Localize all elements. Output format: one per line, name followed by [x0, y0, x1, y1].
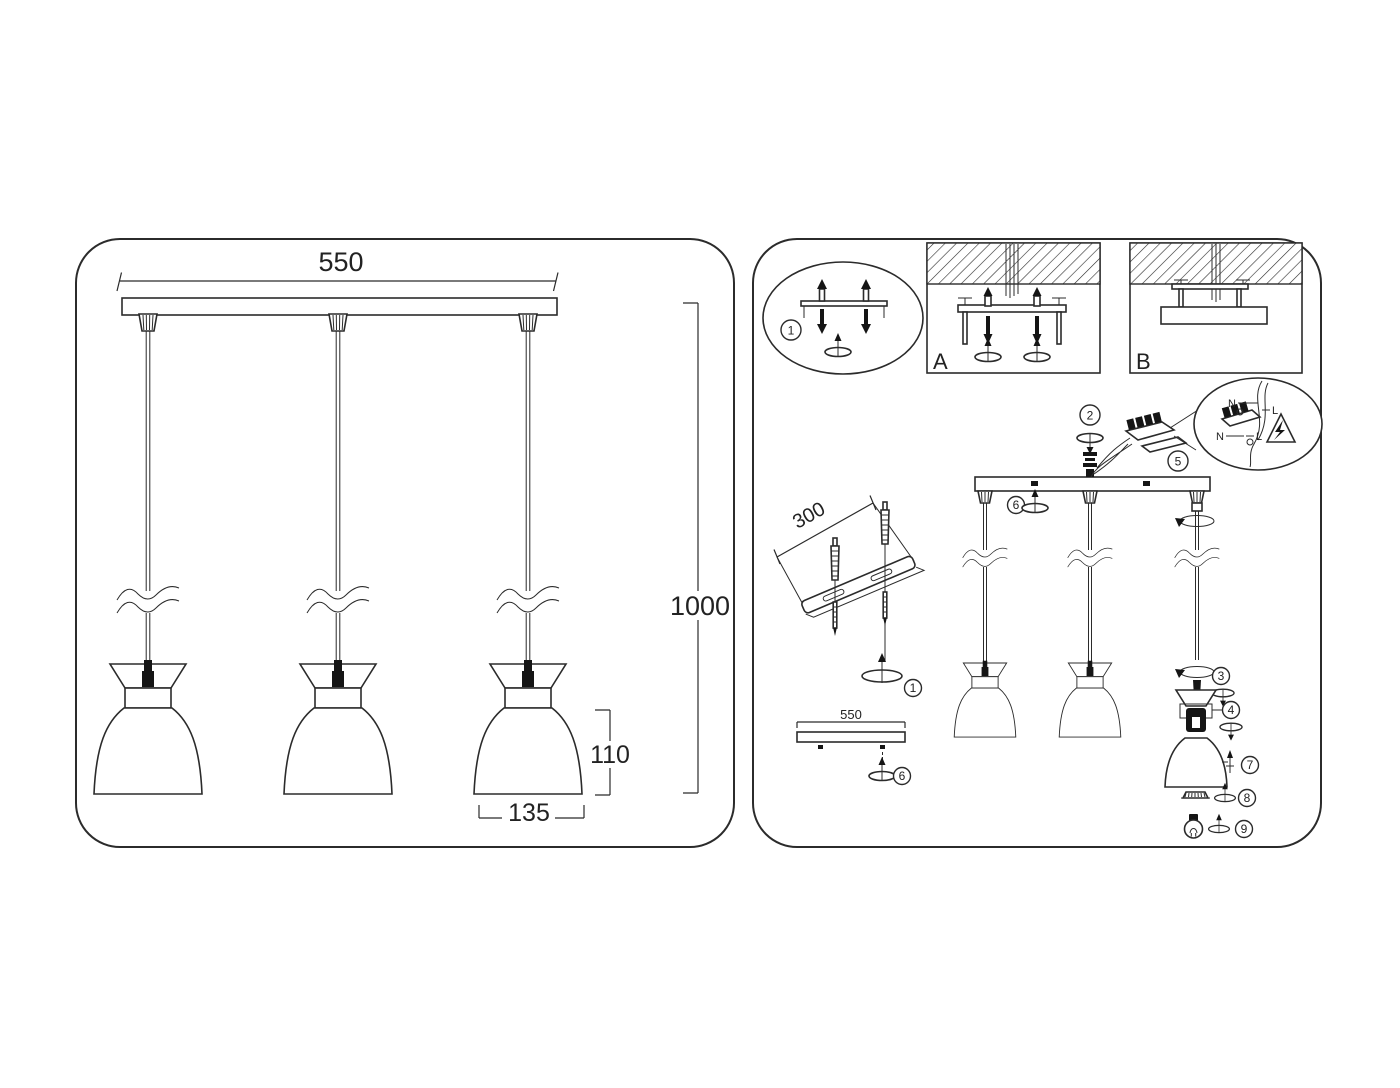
- dim-bar-label: 550: [840, 707, 862, 722]
- wiring-detail: N L N L: [1194, 378, 1322, 470]
- cord-grip: [1083, 491, 1097, 503]
- cord-grip: [978, 491, 992, 503]
- callout-8: 8: [1239, 790, 1256, 807]
- cord-grip: [1190, 491, 1204, 503]
- svg-text:4: 4: [1228, 703, 1235, 717]
- svg-text:6: 6: [899, 769, 906, 783]
- callout-1b: 1: [905, 680, 922, 697]
- svg-text:6: 6: [1013, 498, 1020, 512]
- callout-3: 3: [1213, 668, 1230, 685]
- svg-text:7: 7: [1247, 758, 1254, 772]
- svg-text:1: 1: [910, 681, 917, 695]
- mount-option-a: A: [927, 243, 1100, 374]
- svg-text:9: 9: [1241, 822, 1248, 836]
- svg-text:2: 2: [1087, 409, 1094, 423]
- wire-live-bottom: L: [1256, 431, 1262, 443]
- mount-option-b: B: [1130, 243, 1302, 374]
- svg-text:1: 1: [788, 324, 795, 338]
- assembly-bar: [975, 477, 1210, 491]
- expansion-plug: [831, 538, 839, 580]
- callout-5: 5: [1168, 451, 1188, 471]
- left-panel: 550 1000 110 135: [76, 239, 734, 847]
- svg-text:8: 8: [1244, 791, 1251, 805]
- cord-grip: [139, 314, 157, 331]
- cord-grip: [519, 314, 537, 331]
- wire-neutral-top: N: [1228, 398, 1236, 410]
- canopy-bar: [122, 298, 557, 315]
- step1-bracket-detail: 1: [763, 262, 923, 374]
- wire-neutral-bottom: N: [1216, 431, 1224, 443]
- dim-shade-height-label: 110: [590, 741, 630, 769]
- diagram-canvas: 550 1000 110 135: [0, 0, 1400, 1088]
- option-b-label: B: [1136, 349, 1151, 374]
- callout-9: 9: [1236, 821, 1253, 838]
- option-a-label: A: [933, 349, 948, 374]
- dim-drop-height-label: 1000: [670, 591, 730, 621]
- callout-7: 7: [1242, 757, 1259, 774]
- expansion-plug: [881, 502, 889, 544]
- callout-6: 6: [1008, 497, 1025, 514]
- wire-live-top: L: [1272, 405, 1278, 417]
- svg-text:3: 3: [1218, 669, 1225, 683]
- cord-grip: [329, 314, 347, 331]
- shade-ring: [1181, 792, 1210, 798]
- instruction-sheet: 550 1000 110 135: [0, 0, 1400, 1088]
- callout-4: 4: [1223, 702, 1240, 719]
- right-panel: 1 A B 300: [753, 239, 1322, 847]
- callout-2: 2: [1080, 405, 1100, 425]
- dim-shade-diameter-label: 135: [508, 799, 550, 827]
- callout-6b: 6: [894, 768, 911, 785]
- svg-text:5: 5: [1175, 455, 1182, 469]
- dim-canopy-width-label: 550: [318, 247, 363, 277]
- callout-1: 1: [781, 320, 801, 340]
